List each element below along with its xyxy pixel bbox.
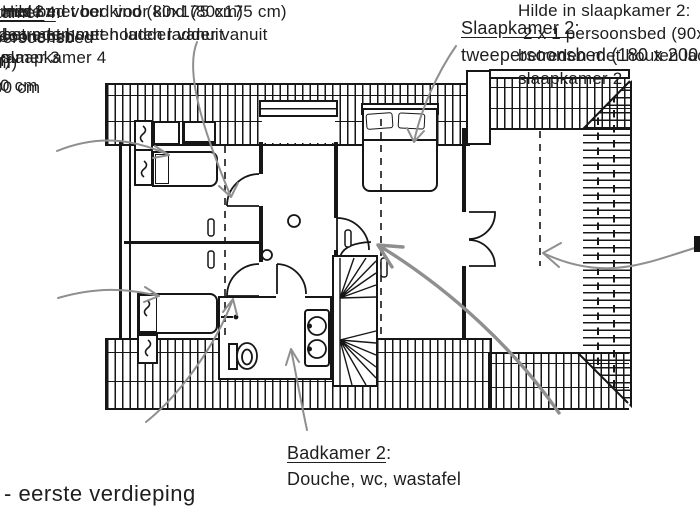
closet-double-door-lower (469, 240, 495, 266)
hall-circle-small (262, 250, 272, 260)
leader-right-edge-to-closet (543, 243, 698, 268)
room3-door (227, 174, 259, 206)
washbasin-tap-right (308, 347, 311, 350)
pillow-squiggles (141, 126, 151, 356)
leader-room4-to-bed (58, 287, 159, 302)
roof-miter-bottom-right (578, 353, 628, 403)
leader-hilde-room2-thick-arrow (378, 245, 559, 413)
leader-bathroom (286, 349, 307, 430)
room4-door (227, 264, 259, 296)
roof-miter-top-right (583, 81, 630, 129)
leader-top-left-to-kid-bed (193, 42, 238, 197)
toilet-bowl-inner (242, 350, 252, 365)
stair-treads (340, 258, 376, 386)
hall-circle-large (288, 215, 300, 227)
plan-overlay (0, 0, 700, 500)
washbasin-tap-left (308, 324, 311, 327)
bathroom-door (277, 264, 306, 294)
leader-room3-to-bed (57, 140, 169, 158)
leader-room2-to-bed (407, 46, 456, 142)
clipped-text-fragment (694, 236, 700, 252)
closet-double-door-upper (469, 212, 495, 239)
floor-plan-page: { "annotations": { "top_left": {"lines":… (0, 0, 700, 500)
